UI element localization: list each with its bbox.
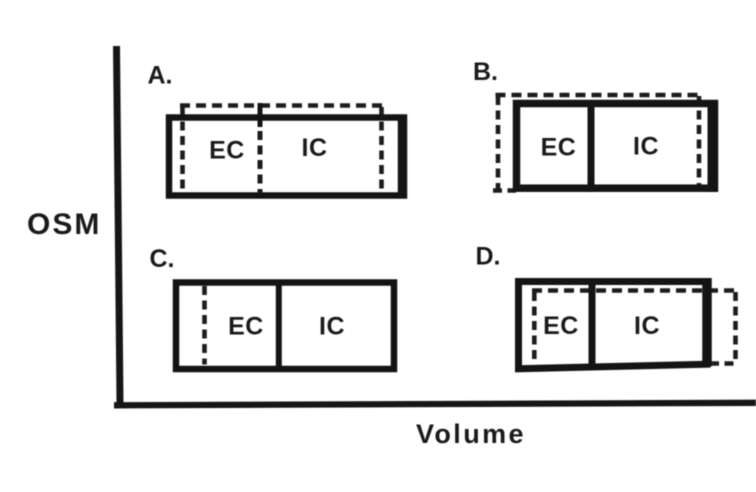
svg-text:IC: IC [302,134,328,162]
svg-text:Volume: Volume [416,419,526,449]
svg-text:EC: EC [228,313,264,341]
svg-text:IC: IC [634,312,660,340]
svg-text:IC: IC [633,133,659,161]
svg-text:C.: C. [150,245,175,273]
svg-text:IC: IC [319,313,345,341]
svg-text:B.: B. [473,58,498,86]
svg-text:EC: EC [541,134,577,162]
svg-text:OSM: OSM [27,208,101,241]
svg-text:A.: A. [148,62,173,90]
svg-text:D.: D. [476,243,501,271]
svg-text:EC: EC [543,312,579,340]
svg-text:EC: EC [209,137,245,165]
